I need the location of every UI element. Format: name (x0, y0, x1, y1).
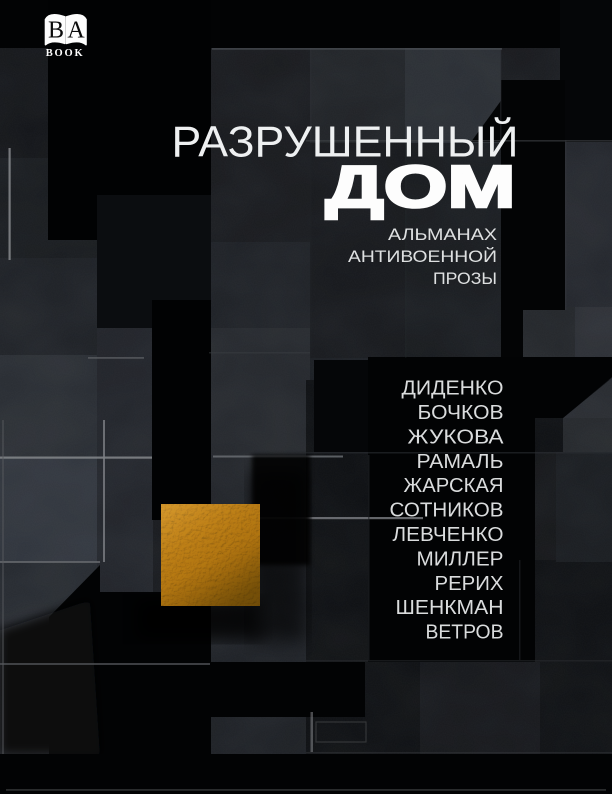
svg-text:ЖАРСКАЯ: ЖАРСКАЯ (404, 475, 504, 497)
svg-text:РЕРИХ: РЕРИХ (435, 573, 504, 595)
svg-text:АНТИВОЕННОЙ: АНТИВОЕННОЙ (348, 247, 497, 266)
svg-text:ЖУКОВА: ЖУКОВА (408, 426, 505, 448)
svg-text:B: B (48, 18, 64, 44)
svg-text:ШЕНКМАН: ШЕНКМАН (396, 597, 504, 619)
svg-text:ДОМ: ДОМ (326, 154, 516, 220)
svg-text:АЛЬМАНАХ: АЛЬМАНАХ (388, 226, 497, 244)
svg-text:СОТНИКОВ: СОТНИКОВ (390, 500, 504, 522)
svg-text:ВЕТРОВ: ВЕТРОВ (426, 622, 504, 644)
svg-text:ДИДЕНКО: ДИДЕНКО (402, 378, 504, 400)
svg-text:BOOK: BOOK (46, 48, 86, 59)
svg-text:ЛЕВЧЕНКО: ЛЕВЧЕНКО (393, 524, 504, 546)
svg-text:МИЛЛЕР: МИЛЛЕР (417, 548, 504, 570)
svg-text:БОЧКОВ: БОЧКОВ (418, 402, 504, 424)
svg-text:РАМАЛЬ: РАМАЛЬ (417, 451, 504, 473)
svg-text:ПРОЗЫ: ПРОЗЫ (433, 270, 497, 288)
svg-text:A: A (67, 18, 85, 44)
